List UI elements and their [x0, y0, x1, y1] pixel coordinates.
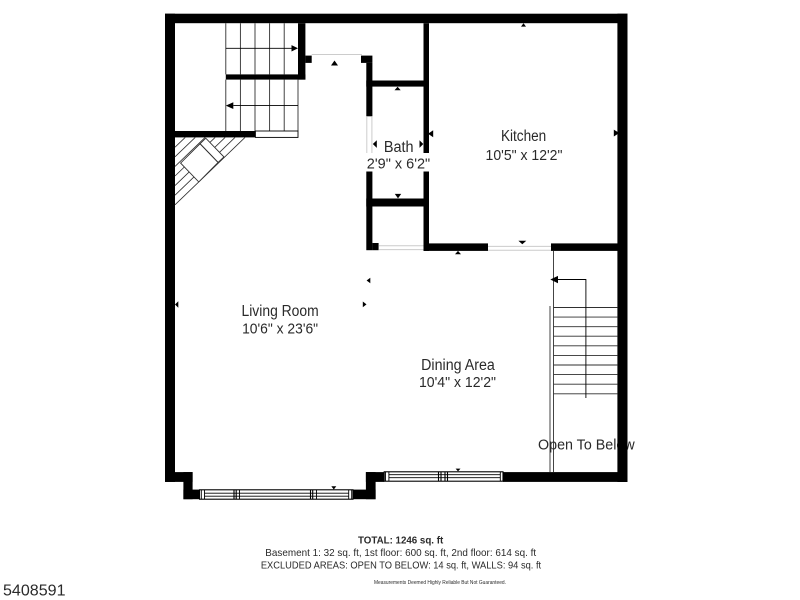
svg-text:EXCLUDED AREAS: OPEN TO BELOW:: EXCLUDED AREAS: OPEN TO BELOW: 14 sq. ft…: [261, 559, 541, 571]
svg-text:Measurements Deemed Highly Rel: Measurements Deemed Highly Reliable But …: [374, 580, 506, 586]
svg-text:Kitchen: Kitchen: [501, 128, 546, 145]
svg-text:Living Room: Living Room: [242, 303, 319, 320]
svg-text:Dining Area: Dining Area: [421, 357, 495, 374]
svg-text:10'5" x 12'2": 10'5" x 12'2": [486, 147, 563, 164]
svg-text:TOTAL: 1246 sq. ft: TOTAL: 1246 sq. ft: [358, 535, 444, 547]
svg-text:10'6" x 23'6": 10'6" x 23'6": [242, 320, 318, 337]
svg-text:10'4" x 12'2": 10'4" x 12'2": [419, 374, 496, 391]
svg-text:Basement 1: 32 sq. ft, 1st flo: Basement 1: 32 sq. ft, 1st floor: 600 sq…: [265, 547, 536, 559]
svg-text:2'9" x 6'2": 2'9" x 6'2": [367, 155, 430, 172]
svg-text:5408591: 5408591: [3, 582, 66, 599]
